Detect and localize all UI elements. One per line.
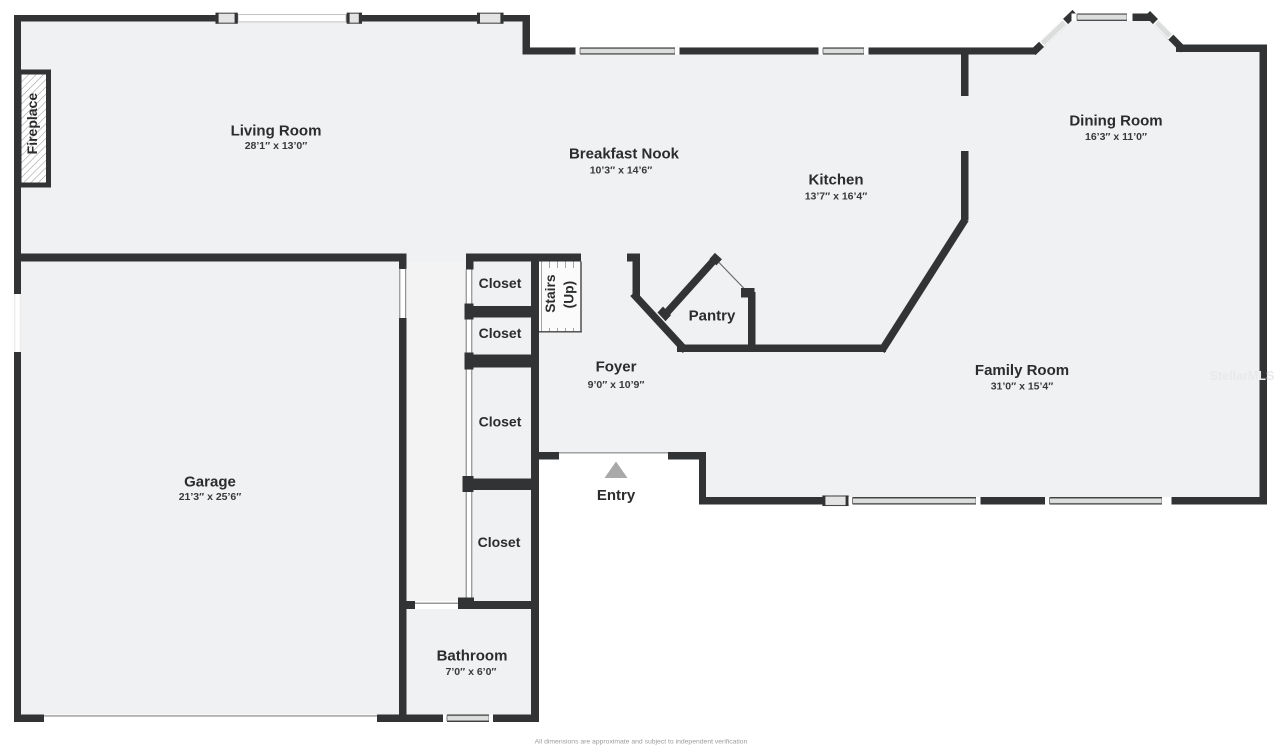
svg-text:(Up): (Up) [561, 281, 576, 309]
svg-text:13’7″ x 16’4″: 13’7″ x 16’4″ [805, 190, 868, 202]
svg-text:All dimensions are approximate: All dimensions are approximate and subje… [535, 739, 748, 746]
svg-text:16’3″ x 11’0″: 16’3″ x 11’0″ [1085, 131, 1147, 143]
svg-text:7’0″ x 6’0″: 7’0″ x 6’0″ [446, 666, 497, 678]
svg-text:Dining Room: Dining Room [1069, 112, 1162, 129]
svg-text:Living Room: Living Room [231, 122, 322, 139]
svg-text:Fireplace: Fireplace [24, 93, 40, 155]
svg-text:21’3″ x 25’6″: 21’3″ x 25’6″ [179, 491, 242, 503]
svg-text:Foyer: Foyer [596, 358, 637, 375]
svg-text:Stairs: Stairs [543, 274, 558, 313]
svg-text:28’1″ x 13’0″: 28’1″ x 13’0″ [245, 140, 308, 152]
svg-text:Closet: Closet [479, 275, 522, 291]
svg-text:Closet: Closet [478, 534, 521, 550]
svg-text:Entry: Entry [597, 487, 636, 504]
svg-text:StellarMLS: StellarMLS [1210, 369, 1275, 383]
svg-text:Breakfast Nook: Breakfast Nook [569, 145, 680, 162]
svg-text:9’0″ x 10’9″: 9’0″ x 10’9″ [588, 379, 645, 391]
svg-text:Bathroom: Bathroom [437, 647, 508, 664]
svg-text:Closet: Closet [479, 414, 522, 430]
svg-text:Pantry: Pantry [689, 307, 736, 324]
svg-text:Closet: Closet [479, 325, 522, 341]
svg-text:Kitchen: Kitchen [808, 171, 863, 188]
svg-text:10’3″ x 14’6″: 10’3″ x 14’6″ [590, 164, 653, 176]
svg-text:Family Room: Family Room [975, 362, 1069, 379]
svg-text:Garage: Garage [184, 473, 236, 490]
svg-text:31’0″ x 15’4″: 31’0″ x 15’4″ [991, 380, 1054, 392]
